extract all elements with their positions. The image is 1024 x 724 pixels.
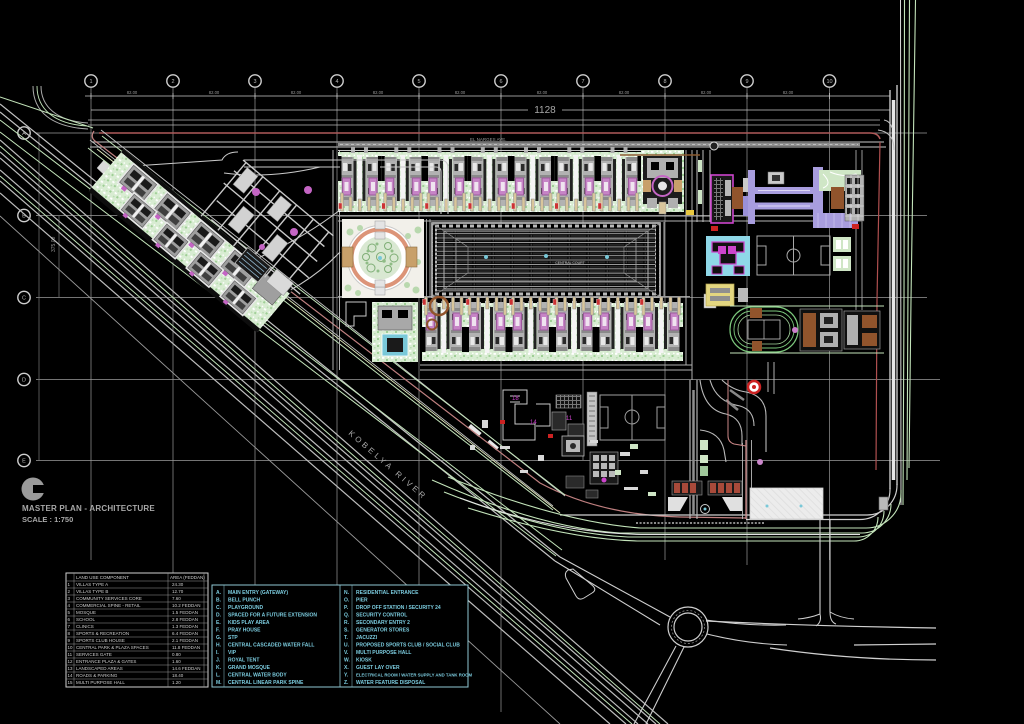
svg-text:O.: O. [344, 598, 350, 604]
svg-text:6: 6 [499, 79, 502, 85]
svg-text:1.20: 1.20 [172, 680, 181, 685]
svg-text:EL NARGES AVE.: EL NARGES AVE. [470, 137, 507, 142]
svg-text:M.: M. [216, 680, 222, 686]
svg-text:AREA (FEDDAN): AREA (FEDDAN) [170, 575, 205, 580]
svg-text:82.00: 82.00 [209, 90, 220, 95]
svg-text:MOSQUE: MOSQUE [76, 610, 96, 615]
svg-text:GRAND MOSQUE: GRAND MOSQUE [228, 665, 271, 671]
svg-text:82.00: 82.00 [619, 90, 630, 95]
svg-text:1.5 FEDDAN: 1.5 FEDDAN [172, 610, 198, 615]
svg-text:GENERATOR STORES: GENERATOR STORES [356, 628, 410, 634]
svg-text:GUEST LAY OVER: GUEST LAY OVER [356, 665, 400, 671]
svg-text:VIP: VIP [228, 650, 237, 656]
svg-text:SERVICES GATE: SERVICES GATE [76, 652, 112, 657]
svg-text:D.: D. [216, 613, 222, 619]
svg-text:H.: H. [216, 643, 222, 649]
svg-text:G.: G. [216, 635, 222, 641]
svg-text:SECONDARY ENTRY 2: SECONDARY ENTRY 2 [356, 620, 410, 626]
svg-text:13: 13 [68, 666, 74, 671]
svg-text:Z.: Z. [344, 680, 349, 686]
svg-text:P.: P. [344, 605, 349, 611]
svg-text:E.: E. [216, 620, 221, 626]
svg-text:C: C [22, 296, 26, 302]
svg-text:BELL PUNCH: BELL PUNCH [228, 598, 261, 604]
svg-text:SPORTS CLUB HOUSE: SPORTS CLUB HOUSE [76, 638, 125, 643]
svg-text:82.00: 82.00 [455, 90, 466, 95]
svg-text:S.: S. [344, 628, 349, 634]
svg-text:U.: U. [344, 643, 350, 649]
svg-text:SECURITY CONTROL: SECURITY CONTROL [356, 613, 407, 619]
svg-text:KIDS PLAY AREA: KIDS PLAY AREA [228, 620, 270, 626]
svg-text:1: 1 [89, 79, 92, 85]
svg-text:SCHOOL: SCHOOL [76, 617, 96, 622]
svg-text:82.00: 82.00 [127, 90, 138, 95]
svg-text:14.6 FEDDAN: 14.6 FEDDAN [172, 666, 201, 671]
svg-text:ELECTRICAL ROOM / WATER SUPPLY: ELECTRICAL ROOM / WATER SUPPLY AND TANK … [356, 673, 473, 678]
svg-text:82.00: 82.00 [701, 90, 712, 95]
svg-text:9: 9 [745, 79, 748, 85]
svg-text:F.: F. [216, 628, 221, 634]
svg-text:82.00: 82.00 [291, 90, 302, 95]
svg-text:STP: STP [228, 635, 238, 641]
svg-text:DROP OFF STATION / SECURITY 24: DROP OFF STATION / SECURITY 24 [356, 605, 441, 611]
svg-text:KIOSK: KIOSK [356, 658, 372, 664]
svg-text:E: E [22, 459, 26, 465]
svg-text:SPACED FOR A FUTURE EXTENSION: SPACED FOR A FUTURE EXTENSION [228, 613, 317, 619]
svg-text:1128: 1128 [534, 105, 556, 116]
svg-text:82.00: 82.00 [783, 90, 794, 95]
svg-text:V.: V. [344, 650, 349, 656]
svg-text:PRAY HOUSE: PRAY HOUSE [228, 628, 261, 634]
svg-text:R.: R. [344, 620, 350, 626]
svg-text:11: 11 [68, 652, 73, 657]
svg-text:10: 10 [826, 79, 832, 85]
svg-text:MAIN ENTRY (GATEWAY): MAIN ENTRY (GATEWAY) [228, 590, 288, 596]
svg-text:W.: W. [344, 658, 350, 664]
svg-text:10: 10 [68, 645, 74, 650]
svg-text:CENTRAL WATER BODY: CENTRAL WATER BODY [228, 673, 287, 679]
svg-text:8: 8 [663, 79, 666, 85]
svg-text:MULTI PURPOSE HALL: MULTI PURPOSE HALL [76, 680, 125, 685]
svg-text:CENTRAL COURT: CENTRAL COURT [555, 261, 585, 265]
svg-text:ENTRANCE PLAZA & GATES: ENTRANCE PLAZA & GATES [76, 659, 136, 664]
svg-text:24.30: 24.30 [172, 582, 184, 587]
svg-text:N.: N. [344, 590, 350, 596]
svg-text:MULTI PURPOSE HALL: MULTI PURPOSE HALL [356, 650, 411, 656]
svg-text:SPORTS & RECREATION: SPORTS & RECREATION [76, 631, 129, 636]
svg-text:11.8 FEDDAN: 11.8 FEDDAN [172, 645, 200, 650]
svg-text:14: 14 [530, 420, 537, 426]
svg-text:B.: B. [216, 598, 222, 604]
svg-text:2.8 FEDDAN: 2.8 FEDDAN [172, 617, 198, 622]
svg-text:RESIDENTIAL ENTRANCE: RESIDENTIAL ENTRANCE [356, 590, 419, 596]
svg-text:JACUZZI: JACUZZI [356, 635, 378, 641]
svg-text:LANDSCAPED AREAS: LANDSCAPED AREAS [76, 666, 123, 671]
svg-text:CENTRAL LINEAR PARK SPINE: CENTRAL LINEAR PARK SPINE [228, 680, 304, 686]
svg-text:A.: A. [216, 590, 222, 596]
svg-text:2: 2 [171, 79, 174, 85]
svg-text:PIER: PIER [356, 598, 368, 604]
svg-text:Y.: Y. [344, 673, 349, 679]
svg-text:18: 18 [512, 396, 519, 402]
svg-text:CENTRAL CASCADED WATER FALL: CENTRAL CASCADED WATER FALL [228, 643, 314, 649]
svg-text:Q.: Q. [344, 613, 350, 619]
svg-text:82.00: 82.00 [537, 90, 548, 95]
svg-text:SCALE : 1:750: SCALE : 1:750 [22, 515, 73, 524]
svg-text:7.60: 7.60 [172, 596, 181, 601]
svg-text:11: 11 [566, 416, 573, 422]
svg-text:VILLAS TYPE B: VILLAS TYPE B [76, 589, 108, 594]
svg-text:PROPOSED SPORTS CLUB / SOCIAL: PROPOSED SPORTS CLUB / SOCIAL CLUB [356, 643, 460, 649]
svg-text:0.80: 0.80 [172, 652, 181, 657]
svg-text:CLINICS: CLINICS [76, 624, 94, 629]
svg-text:ROYAL TENT: ROYAL TENT [228, 658, 259, 664]
svg-text:D: D [22, 378, 26, 384]
svg-text:PLAYGROUND: PLAYGROUND [228, 605, 263, 611]
svg-text:6.4 FEDDAN: 6.4 FEDDAN [172, 631, 198, 636]
svg-text:12: 12 [68, 659, 74, 664]
svg-text:ROADS & PARKING: ROADS & PARKING [76, 673, 118, 678]
svg-text:82.00: 82.00 [373, 90, 384, 95]
svg-text:J.: J. [216, 658, 221, 664]
svg-text:1.3 FEDDAN: 1.3 FEDDAN [172, 624, 198, 629]
svg-text:7: 7 [581, 79, 584, 85]
svg-text:LAND USE COMPONENT: LAND USE COMPONENT [76, 575, 129, 580]
svg-text:COMMUNITY SERVICES CORE: COMMUNITY SERVICES CORE [76, 596, 142, 601]
svg-text:WATER FEATURE DISPOSAL: WATER FEATURE DISPOSAL [356, 680, 425, 686]
svg-text:COMMERCIAL SPINE - RETAIL: COMMERCIAL SPINE - RETAIL [76, 603, 141, 608]
svg-text:VILLAS TYPE A: VILLAS TYPE A [76, 582, 108, 587]
svg-text:2.1 FEDDAN: 2.1 FEDDAN [172, 638, 198, 643]
svg-text:C.: C. [216, 605, 222, 611]
svg-text:18.40: 18.40 [172, 673, 184, 678]
svg-text:10.2 FEDDAN: 10.2 FEDDAN [172, 603, 201, 608]
svg-text:5: 5 [417, 79, 420, 85]
svg-text:MASTER PLAN - ARCHITECTURE: MASTER PLAN - ARCHITECTURE [22, 504, 155, 513]
svg-text:14: 14 [68, 673, 74, 678]
svg-text:X.: X. [344, 665, 349, 671]
svg-text:1.60: 1.60 [172, 659, 181, 664]
svg-text:3: 3 [253, 79, 256, 85]
svg-text:12.70: 12.70 [172, 589, 184, 594]
svg-text:L.: L. [216, 673, 221, 679]
svg-text:T.: T. [344, 635, 349, 641]
svg-text:K.: K. [216, 665, 222, 671]
svg-text:15: 15 [68, 680, 74, 685]
svg-text:CENTRAL PARK & PLAZA SPACES: CENTRAL PARK & PLAZA SPACES [76, 645, 149, 650]
svg-text:4: 4 [335, 79, 338, 85]
